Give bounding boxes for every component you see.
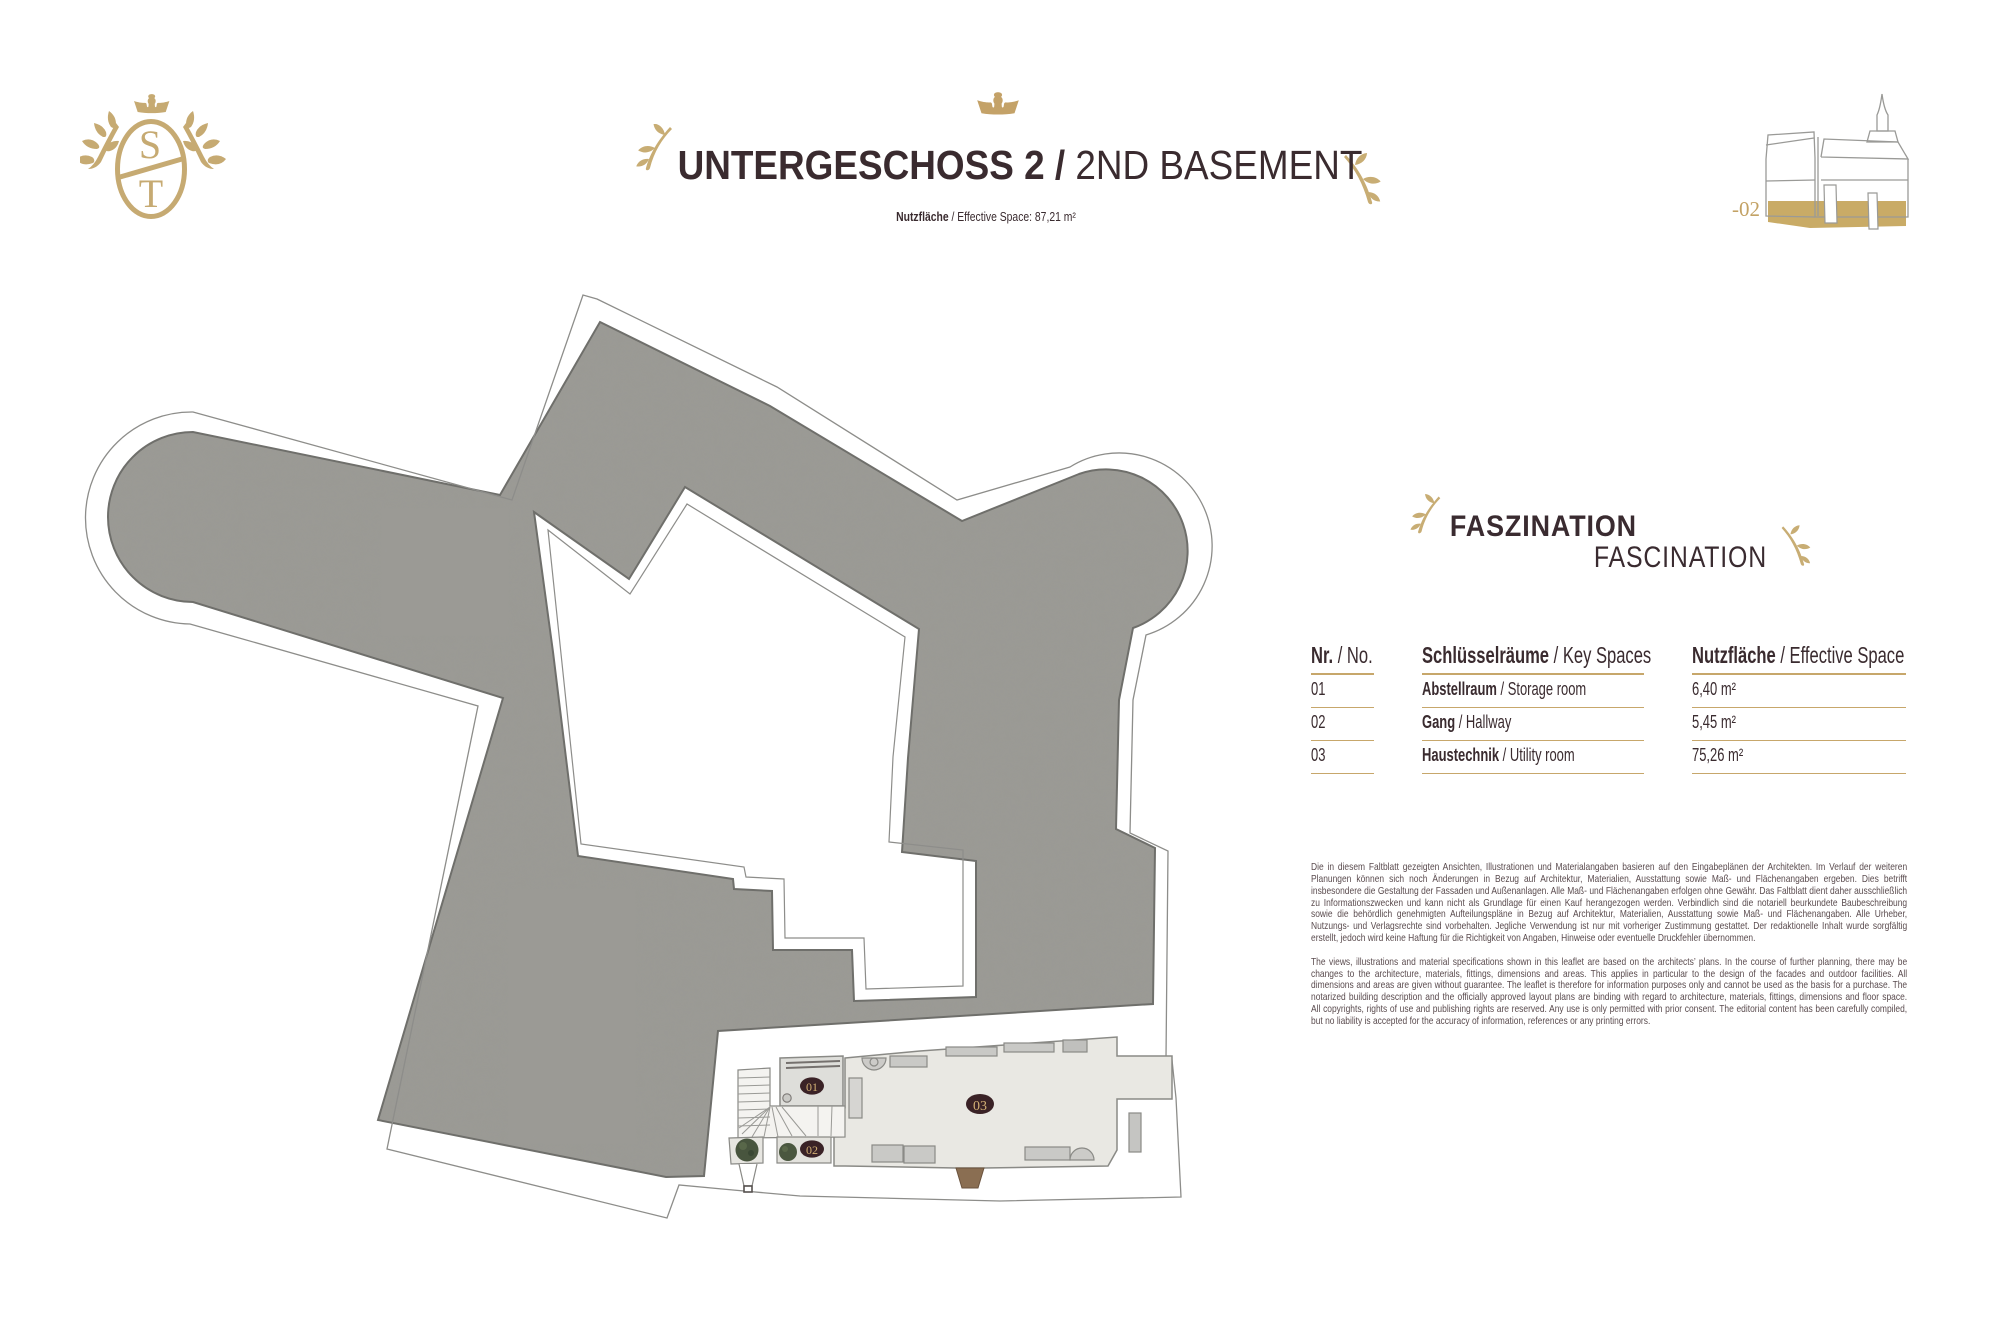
svg-text:01: 01	[806, 1080, 818, 1094]
svg-text:T: T	[139, 171, 163, 216]
svg-text:-02: -02	[1732, 197, 1760, 221]
svg-text:03: 03	[973, 1099, 987, 1114]
svg-text:02: 02	[806, 1143, 818, 1157]
svg-text:S: S	[139, 122, 161, 167]
